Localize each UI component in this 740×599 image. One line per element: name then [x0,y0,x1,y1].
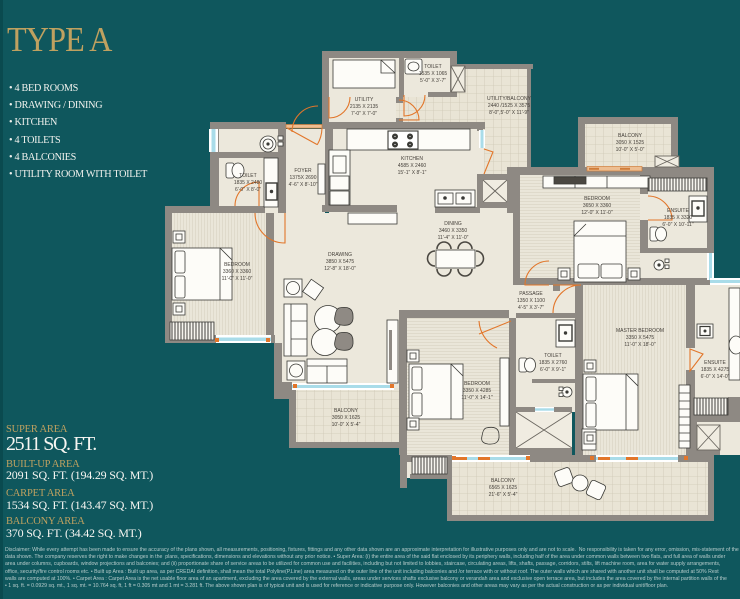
svg-text:1350 X 1100: 1350 X 1100 [517,298,545,304]
svg-text:BALCONY: BALCONY [491,478,516,484]
svg-text:4'-6" X 8'-10": 4'-6" X 8'-10" [289,182,318,188]
svg-text:11'-0" X 14'-1": 11'-0" X 14'-1" [461,395,492,401]
svg-text:6'-0" X 8'-0": 6'-0" X 8'-0" [235,187,261,193]
svg-text:3460 X 3350: 3460 X 3350 [439,228,468,234]
svg-text:11'-0" X 18'-0": 11'-0" X 18'-0" [624,342,655,348]
svg-text:12'-8" X 18'-0": 12'-8" X 18'-0" [324,266,356,272]
svg-text:3050 X 1525: 3050 X 1525 [616,140,645,146]
svg-text:6'-0" X 9'-1": 6'-0" X 9'-1" [540,367,566,373]
svg-text:BEDROOM: BEDROOM [224,262,250,268]
svg-text:3850 X 5475: 3850 X 5475 [326,259,355,265]
svg-text:1835 X 4275: 1835 X 4275 [701,367,730,373]
svg-text:8'-0",5'-0" X 11'-9": 8'-0",5'-0" X 11'-9" [489,110,529,116]
svg-text:12'-0" X 11'-0": 12'-0" X 11'-0" [581,210,612,216]
svg-text:2440 /1525 X 3575: 2440 /1525 X 3575 [488,103,530,109]
svg-text:ENSUITE: ENSUITE [667,208,689,214]
svg-text:BEDROOM: BEDROOM [584,196,610,202]
svg-text:BALCONY: BALCONY [618,133,643,139]
svg-text:MASTER BEDROOM: MASTER BEDROOM [616,328,664,334]
svg-text:10'-0" X 5'-4": 10'-0" X 5'-4" [332,422,361,428]
svg-text:BEDROOM: BEDROOM [464,381,490,387]
svg-text:DINING: DINING [444,221,462,227]
svg-text:2135 X 2135: 2135 X 2135 [350,104,379,110]
svg-text:1535 X 1065: 1535 X 1065 [419,71,448,77]
svg-text:6'-0" X 10'-11": 6'-0" X 10'-11" [662,222,693,228]
svg-text:15'-1" X 8'-1": 15'-1" X 8'-1" [398,170,427,176]
svg-text:1835 X 2480: 1835 X 2480 [234,180,263,186]
svg-text:ENSUITE: ENSUITE [704,360,726,366]
svg-text:PASSAGE: PASSAGE [519,291,543,297]
svg-text:TOILET: TOILET [239,173,256,179]
svg-text:DRAWING: DRAWING [328,252,352,258]
svg-text:3650 X 3360: 3650 X 3360 [583,203,612,209]
svg-text:10'-0" X 5'-0": 10'-0" X 5'-0" [616,147,645,153]
svg-text:21'-6" X 5'-4": 21'-6" X 5'-4" [489,492,518,498]
svg-text:3350 X 4285: 3350 X 4285 [463,388,492,394]
svg-text:3050 X 1625: 3050 X 1625 [332,415,361,421]
svg-text:TOILET: TOILET [544,353,561,359]
svg-text:3350 X 5475: 3350 X 5475 [626,335,655,341]
svg-text:KITCHEN: KITCHEN [401,156,423,162]
svg-text:4585 X 2460: 4585 X 2460 [398,163,427,169]
svg-text:3360 X 3360: 3360 X 3360 [223,269,252,275]
svg-text:1835 X 2760: 1835 X 2760 [539,360,568,366]
svg-text:BALCONY: BALCONY [334,408,359,414]
svg-text:UTILITY: UTILITY [355,97,374,103]
svg-text:1835 X 3320: 1835 X 3320 [664,215,693,221]
svg-text:5'-0" X 3'-7": 5'-0" X 3'-7" [420,78,446,84]
svg-text:TOILET: TOILET [424,64,441,70]
svg-text:4'-5" X 3'-7": 4'-5" X 3'-7" [518,305,544,311]
svg-text:FOYER: FOYER [294,168,312,174]
svg-text:7'-0" X 7'-0": 7'-0" X 7'-0" [351,111,377,117]
svg-text:6'-0" X 14'-0": 6'-0" X 14'-0" [701,374,730,380]
svg-text:6565 X 1625: 6565 X 1625 [489,485,518,491]
svg-text:1375X 2690: 1375X 2690 [290,175,317,181]
svg-text:UTILITY/BALCONY: UTILITY/BALCONY [487,96,532,102]
svg-text:11'-0" X 11'-0": 11'-0" X 11'-0" [222,276,253,282]
svg-text:11'-4" X 11'-0": 11'-4" X 11'-0" [438,235,469,241]
